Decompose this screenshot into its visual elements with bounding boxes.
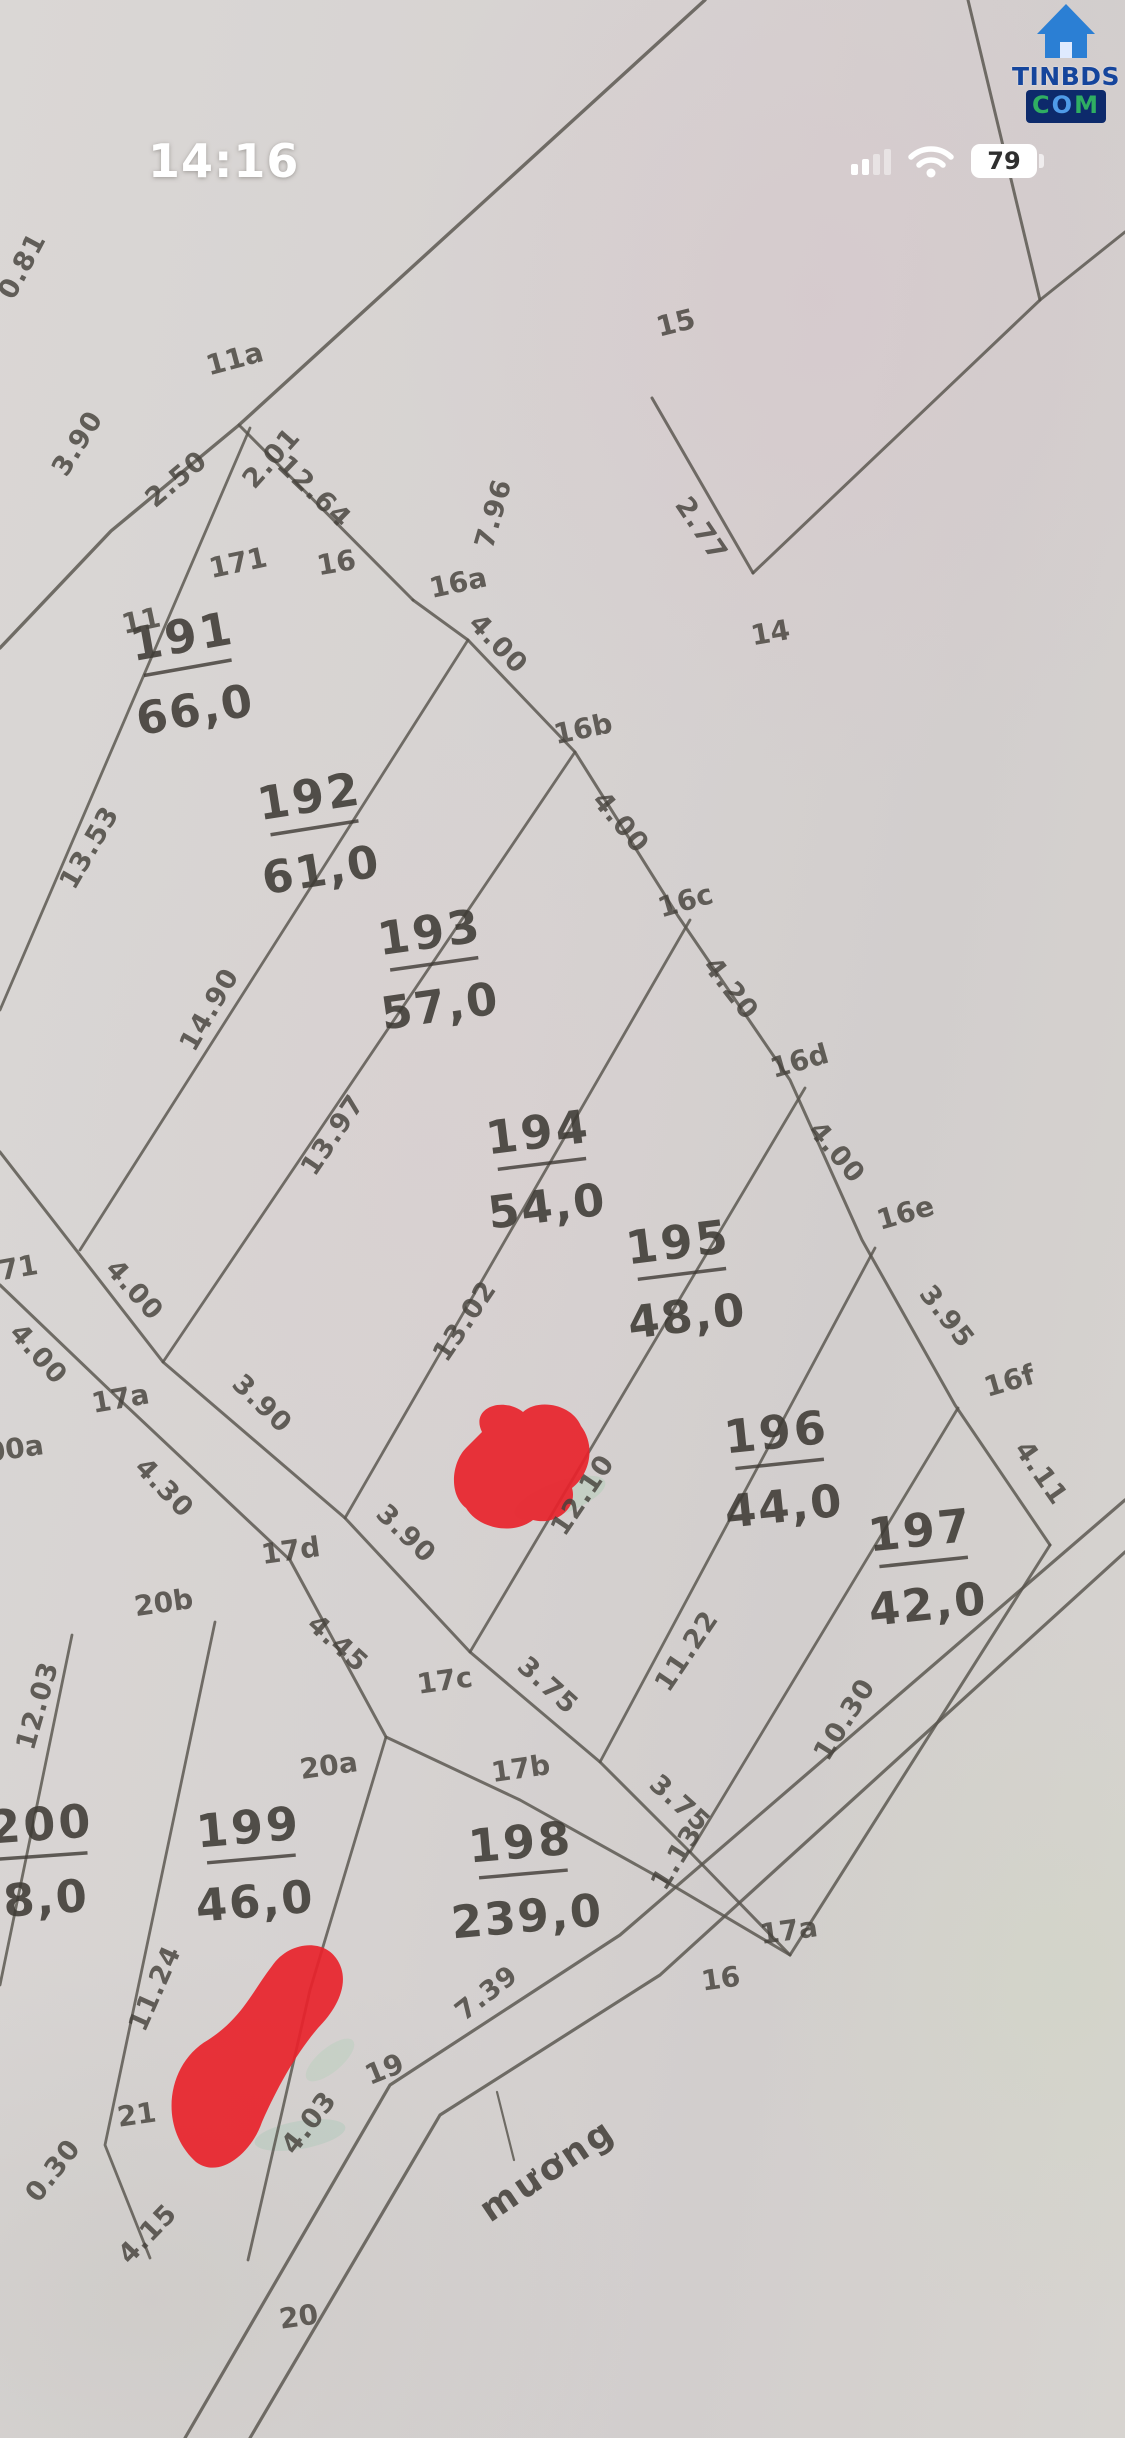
edge-length-label: 4.00 — [3, 1318, 73, 1391]
point-label: 17a — [89, 1377, 152, 1420]
logo-letter: O — [1052, 91, 1074, 119]
parcel-number: 193 — [374, 898, 486, 966]
logo-text-com: COM — [1026, 90, 1106, 123]
parcel-area: 44,0 — [722, 1474, 846, 1539]
point-label: 17d — [259, 1530, 322, 1571]
edge-length-label: 12.64 — [271, 449, 358, 534]
edge-length-label: 4.15 — [112, 2198, 183, 2270]
edge-length-label: 3.95 — [913, 1279, 981, 1354]
point-label: 20b — [132, 1582, 195, 1623]
battery-indicator: 79 — [971, 144, 1037, 178]
point-label: 20 — [277, 2298, 320, 2336]
point-label: 16 — [314, 543, 358, 582]
edge-length-label: 1.13 — [645, 1819, 709, 1895]
phone-screenshot: 19166,019261,019357,019454,019548,019644… — [0, 0, 1125, 2438]
parcel-label-195: 19548,0 — [616, 1208, 750, 1350]
point-label: 16d — [766, 1037, 832, 1085]
green-smudge-2 — [299, 2032, 360, 2089]
clock: 14:16 — [148, 134, 299, 188]
parcel-area: 42,0 — [866, 1572, 990, 1637]
division-195 — [470, 1088, 805, 1652]
edge-length-label: 3.90 — [370, 1498, 442, 1569]
edge-length-label: 7.39 — [449, 1959, 524, 2027]
status-bar: 14:16 79 — [0, 128, 1125, 212]
edge-length-label: 3.90 — [226, 1368, 298, 1439]
logo-text-tinbds: TINBDS — [1009, 64, 1123, 90]
edge-length-label: 4.00 — [802, 1116, 871, 1190]
point-label: 17c — [415, 1660, 475, 1700]
edge-length-label: 4.00 — [586, 786, 655, 860]
edge-length-label: 0.30 — [19, 2133, 87, 2208]
tinbds-house-icon — [1033, 2, 1099, 60]
status-icons: 79 — [851, 142, 1037, 180]
parcel-number: 195 — [623, 1209, 734, 1275]
point-label: 171 — [206, 540, 270, 584]
parcel-area: 48,0 — [625, 1283, 750, 1350]
parcel-area: 57,0 — [378, 971, 503, 1040]
point-label: 71 — [0, 1248, 40, 1287]
edge-length-label: 13.53 — [54, 801, 126, 895]
parcel-area: 66,0 — [132, 673, 258, 746]
parcel-label-198: 198239,0 — [442, 1809, 605, 1950]
parcel-label-193: 19357,0 — [367, 897, 503, 1040]
edge-length-label: 4.20 — [697, 951, 765, 1026]
edge-length-label: 2.77 — [668, 491, 733, 567]
edge-length-label: 11.24 — [123, 1941, 188, 2036]
parcel-number: 197 — [865, 1498, 975, 1563]
tinbds-watermark: TINBDS COM — [1009, 2, 1123, 123]
parcel-number: 200 — [0, 1793, 95, 1854]
edge-length-label: 7.96 — [469, 475, 518, 551]
parcel-label-196: 19644,0 — [714, 1399, 846, 1539]
zigzag-15-right — [753, 232, 1125, 573]
battery-nub — [1039, 154, 1044, 168]
canal-lower — [250, 1552, 1125, 2438]
point-label: 16 — [699, 1960, 742, 1998]
parcel-number: 198 — [466, 1811, 575, 1874]
parcel-label-197: 19742,0 — [858, 1497, 990, 1637]
point-label: 11a — [202, 335, 266, 382]
point-label: 00a — [0, 1428, 46, 1469]
parcel-label-194: 19454,0 — [476, 1098, 610, 1240]
point-label: 17b — [489, 1748, 552, 1789]
parcel-label-200: 2008,0 — [0, 1793, 100, 1928]
point-label: 16f — [980, 1358, 1039, 1404]
parcel-label-192: 19261,0 — [246, 760, 384, 905]
logo-letter: M — [1074, 91, 1100, 119]
parcel-area: 61,0 — [258, 834, 384, 905]
parcel-underline — [0, 1853, 88, 1859]
edge-length-label: 13.97 — [295, 1089, 371, 1181]
cellular-signal-icon — [851, 147, 891, 175]
point-label: 16b — [551, 706, 616, 751]
parcel-area: 8,0 — [1, 1869, 90, 1928]
point-label: 17a — [758, 1910, 820, 1951]
point-label: 21 — [115, 2096, 158, 2134]
wifi-icon — [907, 142, 955, 180]
parcel-number: 199 — [194, 1796, 303, 1859]
battery-percent: 79 — [987, 147, 1020, 175]
edge-length-label: 14.90 — [174, 963, 246, 1057]
canal-annotation: mương — [472, 2110, 623, 2230]
edge-length-label: 3.90 — [46, 405, 110, 481]
point-label: 16c — [654, 877, 717, 924]
point-label: 16e — [873, 1189, 938, 1237]
cadastral-map: 19166,019261,019357,019454,019548,019644… — [0, 0, 1125, 2438]
parcel-area: 54,0 — [485, 1173, 610, 1240]
point-label: 16a — [426, 561, 489, 605]
edge-length-label: 0.81 — [0, 228, 53, 305]
parcel-number: 196 — [721, 1400, 831, 1465]
edge-length-label: 4.45 — [301, 1609, 374, 1679]
parcel-area: 239,0 — [449, 1883, 605, 1949]
logo-letter: C — [1032, 91, 1052, 119]
point-label: 19 — [360, 2047, 408, 2092]
point-label: 15 — [653, 302, 699, 343]
edge-length-label: 4.30 — [128, 1452, 199, 1524]
point-label: 20a — [298, 1745, 360, 1786]
parcel-number: 194 — [483, 1099, 594, 1165]
boundary-16-zigzag — [413, 600, 1050, 1545]
parcel-area: 46,0 — [193, 1870, 316, 1933]
parcel-label-199: 19946,0 — [187, 1795, 317, 1933]
muong-leader — [497, 2092, 514, 2160]
edge-length-label: 4.00 — [99, 1254, 169, 1327]
edge-length-label: 13.02 — [427, 1275, 503, 1367]
point-label: 14 — [748, 613, 792, 652]
edge-length-label: 3.75 — [511, 1651, 584, 1721]
